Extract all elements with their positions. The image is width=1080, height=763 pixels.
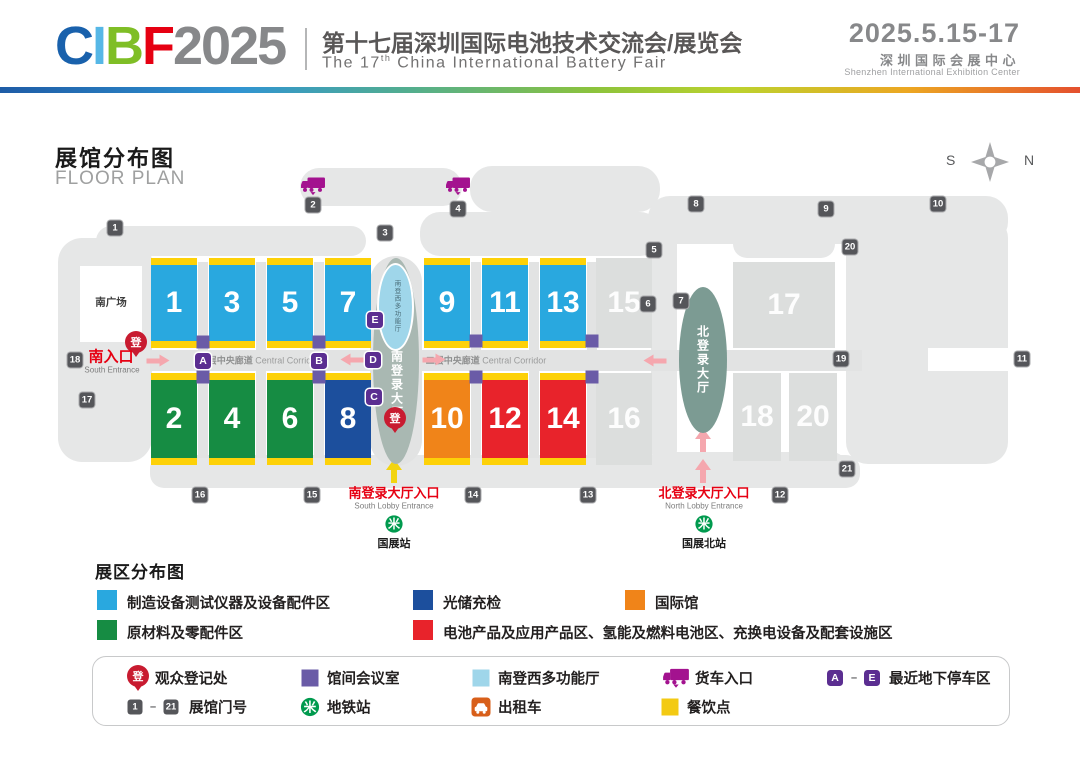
gate-badge-8: 8 (689, 197, 704, 212)
gate-badge-15: 15 (305, 488, 320, 503)
svg-text:米: 米 (388, 516, 401, 531)
hall-5: 5 (267, 258, 313, 348)
gate-badge-9: 9 (819, 202, 834, 217)
zone-legend-label-equipment: 制造设备测试仪器及设备配件区 (127, 592, 330, 613)
north-lobby-entrance-label-en: North Lobby Entrance (665, 502, 743, 511)
gate-badge-12: 12 (773, 488, 788, 503)
truck-entrance-icon (300, 177, 326, 196)
metro-station-icon: 米 (695, 515, 713, 533)
gate-badge-21: 21 (840, 462, 855, 477)
parking-badge-A: A (195, 353, 211, 369)
hall-8: 8 (325, 373, 371, 465)
parking-badge-D: D (365, 352, 381, 368)
gate-badge-6: 6 (641, 297, 656, 312)
north-lobby-entrance-label-zh: 北登录大厅入口 (658, 483, 749, 502)
metro-station-label: 国展北站 (682, 535, 726, 551)
hall-20: 20 (789, 373, 837, 461)
hall-11: 11 (482, 258, 528, 348)
parking-badge-E: E (367, 312, 383, 328)
meeting-room-connector (197, 336, 210, 349)
hall-10: 10 (424, 373, 470, 465)
building-outline (733, 218, 835, 258)
gate-badge-16: 16 (193, 488, 208, 503)
hall-18: 18 (733, 373, 781, 461)
building-outline (420, 212, 660, 256)
cibf-floor-plan-page: CIBF2025 第十七届深圳国际电池技术交流会/展览会 The 17th Ch… (0, 0, 1080, 763)
parking-badge-C: C (366, 389, 382, 405)
gate-badge-7: 7 (674, 294, 689, 309)
gate-badge-17: 17 (80, 393, 95, 408)
gate-badge-5: 5 (647, 243, 662, 258)
north-lobby-label: 北登录大厅 (695, 325, 712, 395)
hall-13: 13 (540, 258, 586, 348)
zone-legend-label-storage: 光储充检 (443, 592, 501, 613)
hall-2: 2 (151, 373, 197, 465)
gate-badge-3: 3 (378, 226, 393, 241)
north-corridor-band (713, 352, 846, 370)
building-outline (470, 166, 660, 212)
gate-badge-10: 10 (931, 197, 946, 212)
south-entrance-label-en: South Entrance (84, 366, 139, 375)
hall-3: 3 (209, 258, 255, 348)
right-corridor-slot (928, 348, 1022, 371)
meeting-room-connector (197, 371, 210, 384)
hall-16: 16 (596, 373, 652, 465)
zone-legend-swatch-equipment (97, 590, 117, 610)
metro-station-icon: 米 (385, 515, 403, 533)
gate-badge-14: 14 (466, 488, 481, 503)
floor-plan-map: 南广场13579111315246810121416171820二层中央廊道 C… (0, 0, 1080, 763)
corridor-arrow (644, 355, 667, 368)
building-outline (846, 216, 1008, 464)
zone-legend-swatch-battery (413, 620, 433, 640)
zone-legend-swatch-materials (97, 620, 117, 640)
hall-4: 4 (209, 373, 255, 465)
gate-badge-18: 18 (68, 353, 83, 368)
zone-legend-label-battery: 电池产品及应用产品区、氢能及燃料电池区、充换电设备及配套设施区 (443, 622, 893, 643)
gate-badge-4: 4 (451, 202, 466, 217)
south-lobby-entrance-label-zh: 南登录大厅入口 (348, 483, 439, 502)
meeting-room-connector (470, 335, 483, 348)
south-plaza-label: 南广场 (95, 295, 127, 310)
south-entrance-label-zh: 南入口 (88, 346, 133, 367)
corridor-arrow (423, 354, 446, 367)
gate-badge-13: 13 (581, 488, 596, 503)
meeting-room-connector (586, 371, 599, 384)
register-pin-south-lobby: 登 (384, 407, 406, 429)
hall-6: 6 (267, 373, 313, 465)
south-lobby-multihall-label: 南登西多功能厅 (391, 280, 401, 333)
gate-badge-11: 11 (1015, 352, 1030, 367)
svg-text:米: 米 (698, 516, 711, 531)
zone-legend-title: 展区分布图 (95, 558, 185, 583)
meeting-room-connector (313, 336, 326, 349)
parking-badge-B: B (311, 353, 327, 369)
meeting-room-connector (313, 371, 326, 384)
hall-9: 9 (424, 258, 470, 348)
meeting-room-connector (586, 335, 599, 348)
hall-17: 17 (733, 262, 835, 348)
metro-station-label: 国展站 (378, 535, 411, 551)
gate-badge-19: 19 (834, 352, 849, 367)
zone-legend-label-international: 国际馆 (655, 592, 699, 613)
gate-badge-20: 20 (843, 240, 858, 255)
central-corridor-label: 二层中央廊道 Central Corridor (199, 354, 320, 367)
hall-7: 7 (325, 258, 371, 348)
corridor-arrow (147, 355, 170, 368)
hall-14: 14 (540, 373, 586, 465)
south-lobby-entrance-label-en: South Lobby Entrance (354, 502, 433, 511)
hall-1: 1 (151, 258, 197, 348)
truck-entrance-icon (445, 177, 471, 196)
hall-12: 12 (482, 373, 528, 465)
zone-legend-swatch-international (625, 590, 645, 610)
zone-legend-label-materials: 原材料及零配件区 (127, 622, 243, 643)
zone-legend-swatch-storage (413, 590, 433, 610)
entrance-arrow (695, 459, 711, 484)
gate-badge-1: 1 (108, 221, 123, 236)
facility-legend-box (92, 656, 1010, 726)
gate-badge-2: 2 (306, 198, 321, 213)
corridor-arrow (341, 354, 364, 367)
meeting-room-connector (470, 371, 483, 384)
